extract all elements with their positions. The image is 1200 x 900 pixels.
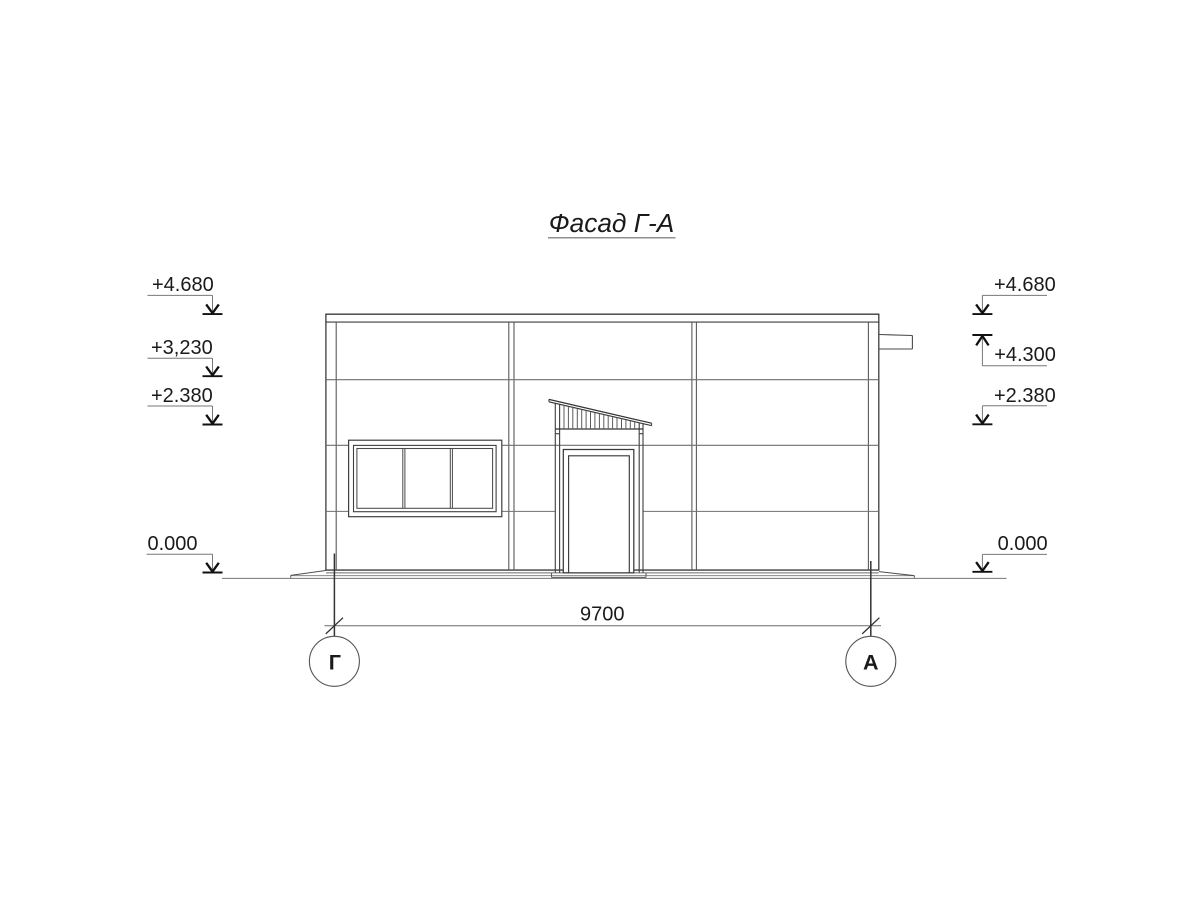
svg-text:+2.380: +2.380 xyxy=(151,385,213,407)
svg-text:Фасад Г-А: Фасад Г-А xyxy=(549,210,675,238)
svg-text:9700: 9700 xyxy=(580,604,625,626)
svg-text:+4.680: +4.680 xyxy=(994,274,1056,296)
svg-text:+3,230: +3,230 xyxy=(151,337,213,359)
svg-text:+2.380: +2.380 xyxy=(994,385,1056,407)
svg-text:+4.300: +4.300 xyxy=(994,344,1056,366)
svg-text:0.000: 0.000 xyxy=(998,533,1048,555)
svg-text:Г: Г xyxy=(329,650,341,674)
svg-text:А: А xyxy=(863,650,879,674)
svg-text:0.000: 0.000 xyxy=(148,533,198,555)
svg-text:+4.680: +4.680 xyxy=(152,274,214,296)
